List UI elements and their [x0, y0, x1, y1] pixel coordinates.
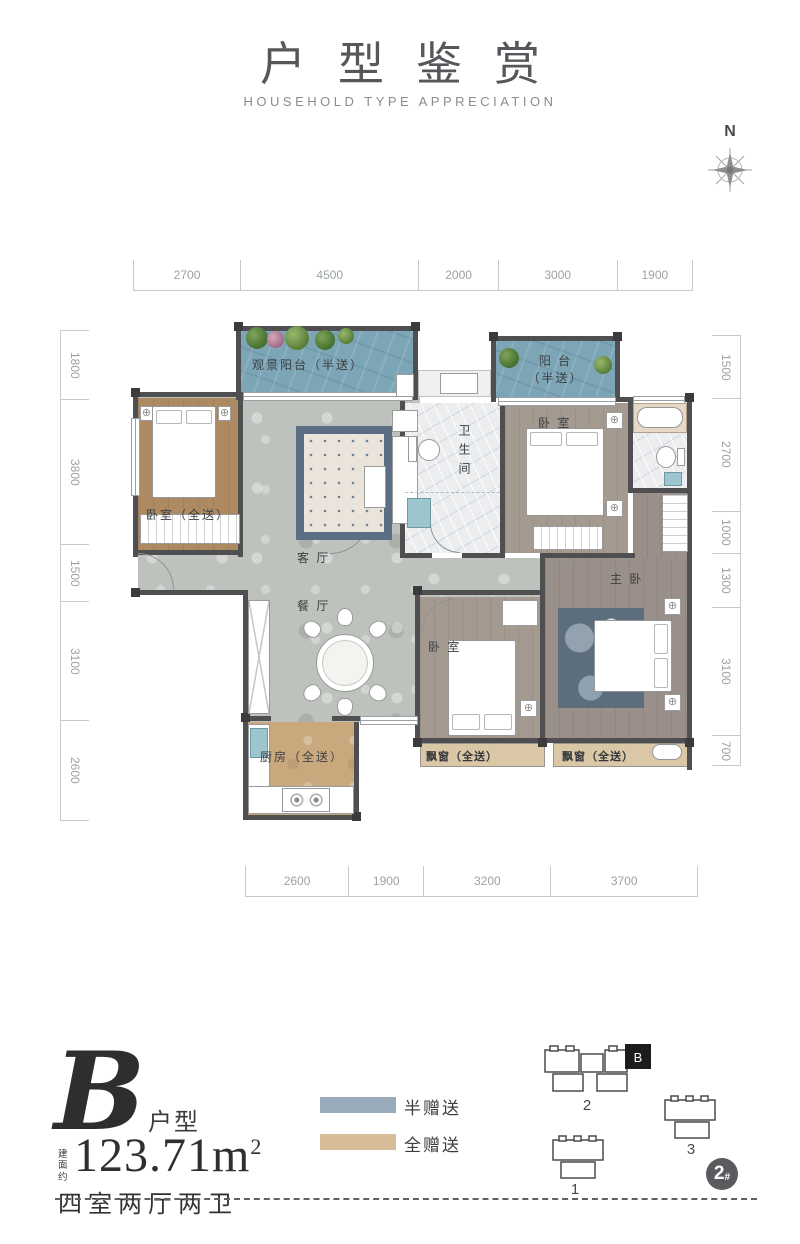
- pillow-icon: [530, 432, 562, 446]
- dim-value: 3700: [550, 866, 697, 896]
- pillow-icon: [654, 624, 668, 654]
- badge-hash: #: [725, 1172, 731, 1183]
- wall: [462, 553, 505, 558]
- dimensions-top: 2700 4500 2000 3000 1900: [133, 260, 693, 291]
- appliance-icon: [440, 373, 478, 394]
- dimensions-right: 1500 2700 1000 1300 3100 700: [712, 335, 741, 766]
- cabinet-icon: [248, 600, 270, 714]
- chair-icon: [337, 698, 353, 716]
- building-3-outline: [665, 1096, 715, 1138]
- window: [243, 392, 413, 401]
- floorplan-poster: 户型鉴赏 HOUSEHOLD TYPE APPRECIATION N 2700 …: [0, 0, 800, 1244]
- chair-icon: [337, 608, 353, 626]
- legend-swatch-half: [320, 1097, 396, 1113]
- wardrobe-icon: [533, 526, 603, 550]
- room-label-bedroom-gift: 卧室（全送）: [146, 506, 230, 523]
- wall: [400, 553, 432, 558]
- wall: [354, 722, 359, 820]
- area-value: 123.71m2: [74, 1128, 262, 1183]
- legend-swatch-full: [320, 1134, 396, 1150]
- dim-value: 1900: [348, 866, 423, 896]
- page-title: 户型鉴赏: [0, 28, 800, 94]
- room-label-balcony-line2: （半送）: [498, 370, 613, 387]
- room-label-master: 主 卧: [610, 570, 643, 587]
- dim-value: 3200: [423, 866, 550, 896]
- dim-value: 3100: [712, 607, 740, 735]
- wall: [540, 553, 635, 558]
- plant-icon: [285, 326, 309, 350]
- wall-pier: [685, 738, 694, 747]
- wall: [491, 336, 620, 341]
- nightstand-icon: [606, 412, 623, 429]
- wall-pier: [131, 388, 140, 397]
- dimensions-bottom: 2600 1900 3200 3700: [245, 866, 698, 897]
- plant-icon: [315, 330, 335, 350]
- dim-value: 3800: [61, 399, 89, 544]
- wall: [133, 590, 248, 595]
- wall: [615, 336, 620, 402]
- dim-value: 3000: [498, 260, 617, 290]
- wall: [236, 326, 241, 400]
- legend-label-full: 全赠送: [404, 1131, 461, 1156]
- dimensions-left: 1800 3800 1500 3100 2600: [60, 330, 89, 821]
- dim-value: 2600: [245, 866, 348, 896]
- dim-value: 2600: [61, 720, 89, 820]
- window: [360, 716, 418, 725]
- pillow-icon: [566, 432, 598, 446]
- pillow-icon: [654, 658, 668, 688]
- room-label-view-balcony: 观景阳台（半送）: [252, 356, 364, 373]
- toilet-icon: [418, 439, 440, 461]
- pillow-icon: [156, 410, 182, 424]
- area-number: 123.71m: [74, 1129, 250, 1182]
- wardrobe-icon: [662, 494, 688, 552]
- wall-pier: [413, 738, 422, 747]
- room-label-living: 客 厅: [297, 549, 330, 566]
- towel-icon: [652, 744, 682, 760]
- building-3-label: 3: [687, 1141, 695, 1158]
- dim-value: 1500: [61, 544, 89, 601]
- layout-text: 四室两厅两卫: [58, 1184, 238, 1219]
- unit-b-marker-label: B: [634, 1050, 643, 1065]
- plant-icon: [246, 327, 268, 349]
- badge-number: 2: [714, 1163, 725, 1185]
- pillow-icon: [484, 714, 512, 730]
- building-number-badge: 2 #: [706, 1158, 738, 1190]
- dim-value: 2700: [133, 260, 240, 290]
- bathtub-icon: [637, 407, 683, 428]
- room-label-balcony: 阳 台 （半送）: [498, 353, 613, 388]
- dim-value: 2000: [418, 260, 497, 290]
- dim-value: 2700: [712, 398, 740, 510]
- wall: [243, 815, 359, 820]
- wall-pier: [489, 332, 498, 341]
- room-label-bathroom: 卫生间: [456, 424, 473, 510]
- wall: [491, 336, 496, 402]
- nightstand-icon: [664, 694, 681, 711]
- wardrobe-icon: [502, 600, 538, 626]
- pillow-icon: [452, 714, 480, 730]
- nightstand-icon: [606, 500, 623, 517]
- compass-north-label: N: [724, 123, 736, 140]
- bottom-divider: [55, 1198, 757, 1200]
- dim-value: 1900: [617, 260, 692, 290]
- wall-pier: [411, 322, 420, 331]
- room-label-dining: 餐 厅: [297, 597, 330, 614]
- armchair-icon: [392, 410, 418, 432]
- nightstand-icon: [218, 406, 231, 421]
- room-label-bay-window-2: 飘窗（全送）: [562, 748, 634, 764]
- room-label-kitchen: 厨房（全送）: [260, 748, 344, 765]
- building-1-label: 1: [571, 1181, 579, 1198]
- dining-table-icon: [316, 634, 374, 692]
- wall: [687, 397, 692, 770]
- compass-icon: N: [702, 120, 758, 202]
- stove-icon: [282, 788, 330, 812]
- building-1-outline: [553, 1136, 603, 1178]
- dim-value: 3100: [61, 601, 89, 720]
- legend-label-half: 半赠送: [404, 1094, 461, 1119]
- toilet-tank-icon: [677, 448, 685, 466]
- window: [498, 397, 616, 406]
- dim-value: 700: [712, 735, 740, 765]
- area-superscript: 2: [250, 1134, 262, 1159]
- wall-pier: [131, 588, 140, 597]
- dim-value: 1800: [61, 330, 89, 399]
- dim-value: 1500: [712, 335, 740, 398]
- nightstand-icon: [140, 406, 153, 421]
- bathroom-sink-icon: [407, 498, 431, 528]
- shower-divider: [405, 492, 500, 493]
- wall: [415, 738, 547, 743]
- wall: [543, 738, 690, 743]
- area-prefix: 建面约: [58, 1149, 71, 1183]
- toilet-tank-icon: [408, 436, 417, 462]
- plant-icon: [338, 328, 354, 344]
- wall: [415, 590, 543, 595]
- toilet-icon: [656, 446, 676, 468]
- wall-pier: [538, 738, 547, 747]
- wall-pier: [685, 393, 694, 402]
- room-label-bedroom-top: 卧 室: [538, 414, 571, 431]
- bathroom-sink-icon: [664, 472, 682, 486]
- pillow-icon: [186, 410, 212, 424]
- building-2-label: 2: [583, 1097, 591, 1114]
- plant-icon: [267, 331, 284, 348]
- wall-pier: [234, 322, 243, 331]
- coffee-table-icon: [364, 466, 386, 508]
- building-2-outline: [545, 1046, 627, 1091]
- nightstand-icon: [664, 598, 681, 615]
- wall-pier: [613, 332, 622, 341]
- wall-pier: [413, 586, 422, 595]
- wall: [500, 397, 505, 558]
- wall: [332, 716, 360, 721]
- cabinet-icon: [396, 374, 414, 397]
- room-label-bay-window-1: 飘窗（全送）: [426, 748, 498, 764]
- wall: [630, 488, 690, 493]
- room-label-bedroom-bottom: 卧 室: [428, 638, 461, 655]
- room-label-balcony-line1: 阳 台: [498, 353, 613, 370]
- wall: [540, 558, 545, 743]
- wall-pier: [241, 713, 250, 722]
- window: [131, 418, 140, 496]
- dim-value: 4500: [240, 260, 418, 290]
- nightstand-icon: [520, 700, 537, 717]
- dim-value: 1300: [712, 553, 740, 607]
- dim-value: 1000: [712, 511, 740, 553]
- wall: [133, 392, 243, 397]
- page-subtitle: HOUSEHOLD TYPE APPRECIATION: [0, 94, 800, 109]
